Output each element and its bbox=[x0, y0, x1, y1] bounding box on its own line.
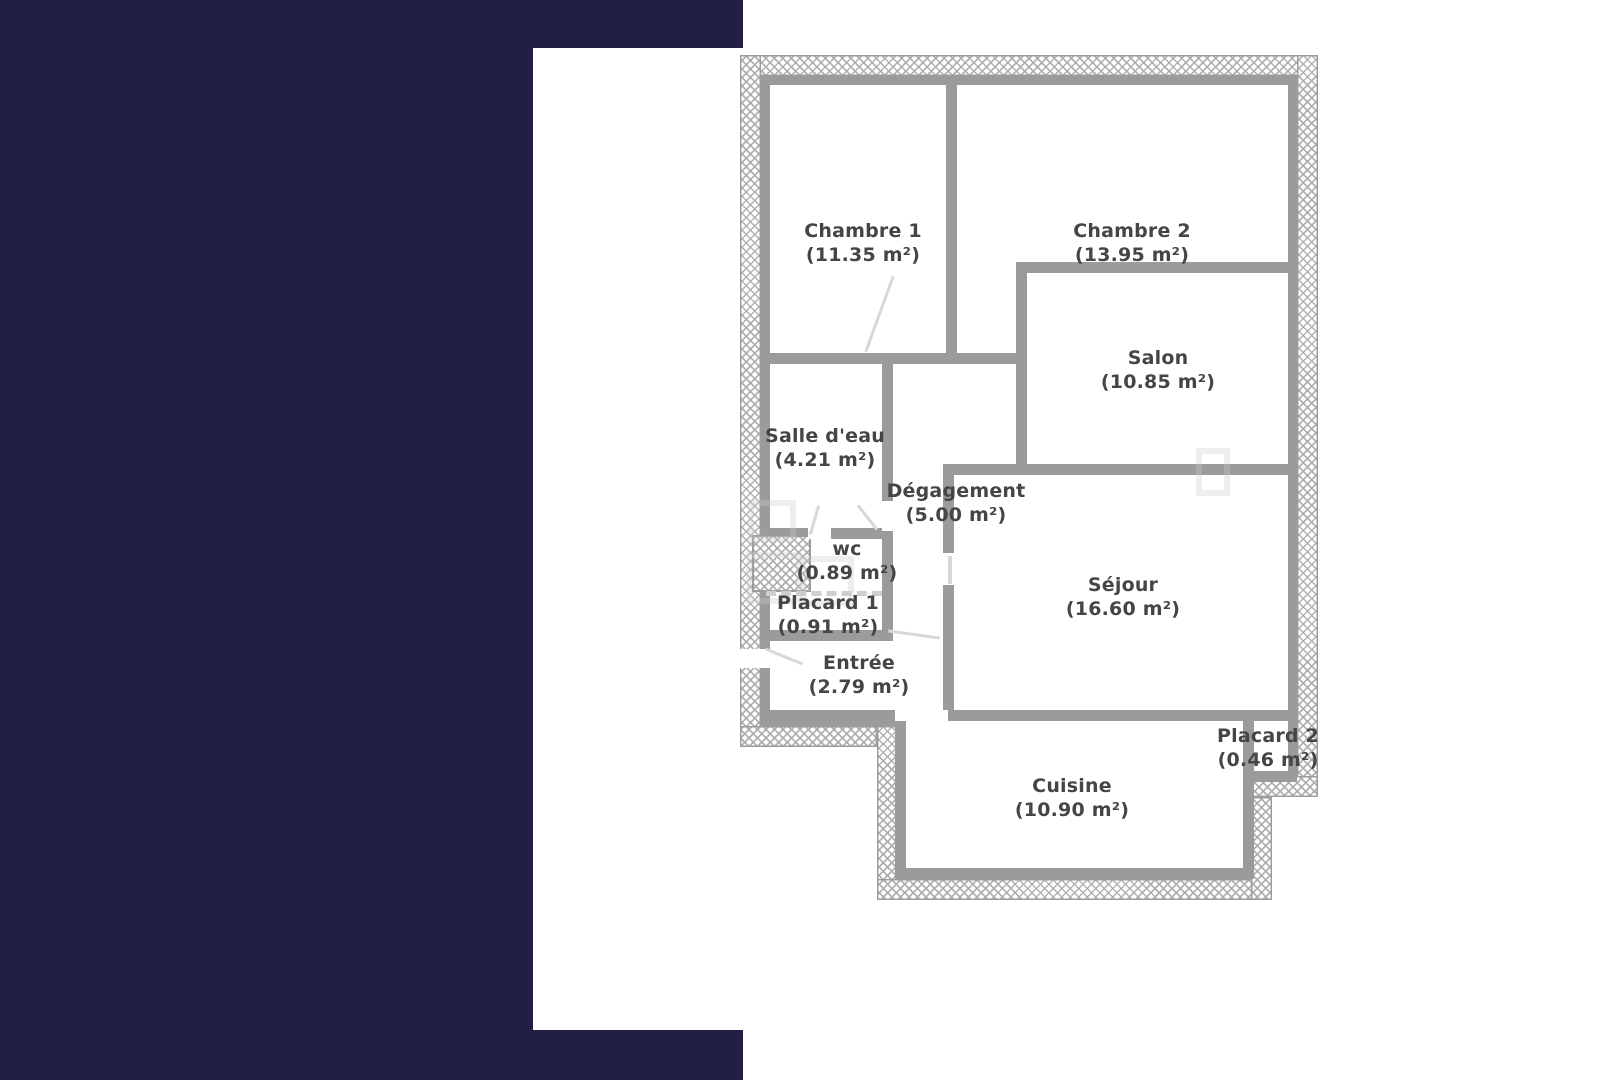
room-label-chambre1: Chambre 1 (11.35 m²) bbox=[804, 219, 922, 267]
room-name: Chambre 1 bbox=[804, 219, 922, 243]
room-area: (10.85 m²) bbox=[1101, 370, 1215, 394]
exterior-wall-entree-bottom bbox=[740, 726, 877, 747]
room-label-degagement: Dégagement (5.00 m²) bbox=[887, 479, 1026, 527]
room-area: (10.90 m²) bbox=[1015, 798, 1129, 822]
exterior-wall-bottom bbox=[877, 879, 1272, 900]
room-name: Placard 2 bbox=[1217, 724, 1319, 748]
room-label-wc: wc (0.89 m²) bbox=[797, 537, 898, 585]
wall-sejour-top bbox=[943, 464, 1288, 475]
wall-inner-top bbox=[761, 76, 1297, 85]
room-name: Placard 1 bbox=[777, 591, 879, 615]
room-label-chambre2: Chambre 2 (13.95 m²) bbox=[1073, 219, 1191, 267]
room-label-placard2: Placard 2 (0.46 m²) bbox=[1217, 724, 1319, 772]
wall-inner-left bbox=[761, 76, 770, 726]
room-area: (2.79 m²) bbox=[809, 675, 910, 699]
room-name: Entrée bbox=[809, 651, 910, 675]
room-area: (0.46 m²) bbox=[1217, 748, 1319, 772]
room-label-placard1: Placard 1 (0.91 m²) bbox=[777, 591, 879, 639]
room-name: wc bbox=[797, 537, 898, 561]
room-name: Chambre 2 bbox=[1073, 219, 1191, 243]
room-name: Séjour bbox=[1066, 573, 1180, 597]
wall-entree-bottom bbox=[761, 710, 895, 726]
room-label-salle-eau: Salle d'eau (4.21 m²) bbox=[765, 424, 885, 472]
room-name: Dégagement bbox=[887, 479, 1026, 503]
wall-salon-left bbox=[1016, 262, 1027, 475]
watermark-fragment bbox=[1196, 448, 1230, 496]
room-label-entree: Entrée (2.79 m²) bbox=[809, 651, 910, 699]
room-name: Salon bbox=[1101, 346, 1215, 370]
exterior-wall-right-lower bbox=[1251, 797, 1272, 900]
floor-plan: Chambre 1 (11.35 m²) Chambre 2 (13.95 m²… bbox=[0, 0, 1622, 1080]
watermark-fragment bbox=[748, 500, 796, 542]
room-label-cuisine: Cuisine (10.90 m²) bbox=[1015, 774, 1129, 822]
wall-below-chambre1 bbox=[761, 353, 1027, 364]
exterior-wall-left bbox=[740, 55, 761, 747]
room-name: Cuisine bbox=[1015, 774, 1129, 798]
wall-cuisine-left bbox=[895, 721, 906, 879]
room-name: Salle d'eau bbox=[765, 424, 885, 448]
wall-placard2-bottom bbox=[1243, 771, 1297, 782]
wall-chambre-divider bbox=[946, 85, 957, 364]
exterior-wall-right-upper bbox=[1297, 55, 1318, 797]
room-area: (0.89 m²) bbox=[797, 561, 898, 585]
door-leaf-sejour bbox=[948, 556, 952, 584]
room-label-sejour: Séjour (16.60 m²) bbox=[1066, 573, 1180, 621]
room-area: (4.21 m²) bbox=[765, 448, 885, 472]
wall-cuisine-top bbox=[948, 710, 1297, 721]
room-chambre2-alcove bbox=[957, 262, 1016, 353]
passage-entree-cuisine bbox=[906, 710, 948, 721]
room-label-salon: Salon (10.85 m²) bbox=[1101, 346, 1215, 394]
room-area: (5.00 m²) bbox=[887, 503, 1026, 527]
screenshot-canvas: { "palette": { "frame_navy": "#221f44", … bbox=[0, 0, 1622, 1080]
room-area: (11.35 m²) bbox=[804, 243, 922, 267]
exterior-wall-top bbox=[740, 55, 1318, 76]
wall-cuisine-bottom bbox=[895, 868, 1254, 879]
wall-inner-right bbox=[1288, 76, 1297, 776]
room-area: (16.60 m²) bbox=[1066, 597, 1180, 621]
room-area: (13.95 m²) bbox=[1073, 243, 1191, 267]
room-area: (0.91 m²) bbox=[777, 615, 879, 639]
door-gap-front-entrance bbox=[738, 649, 772, 668]
